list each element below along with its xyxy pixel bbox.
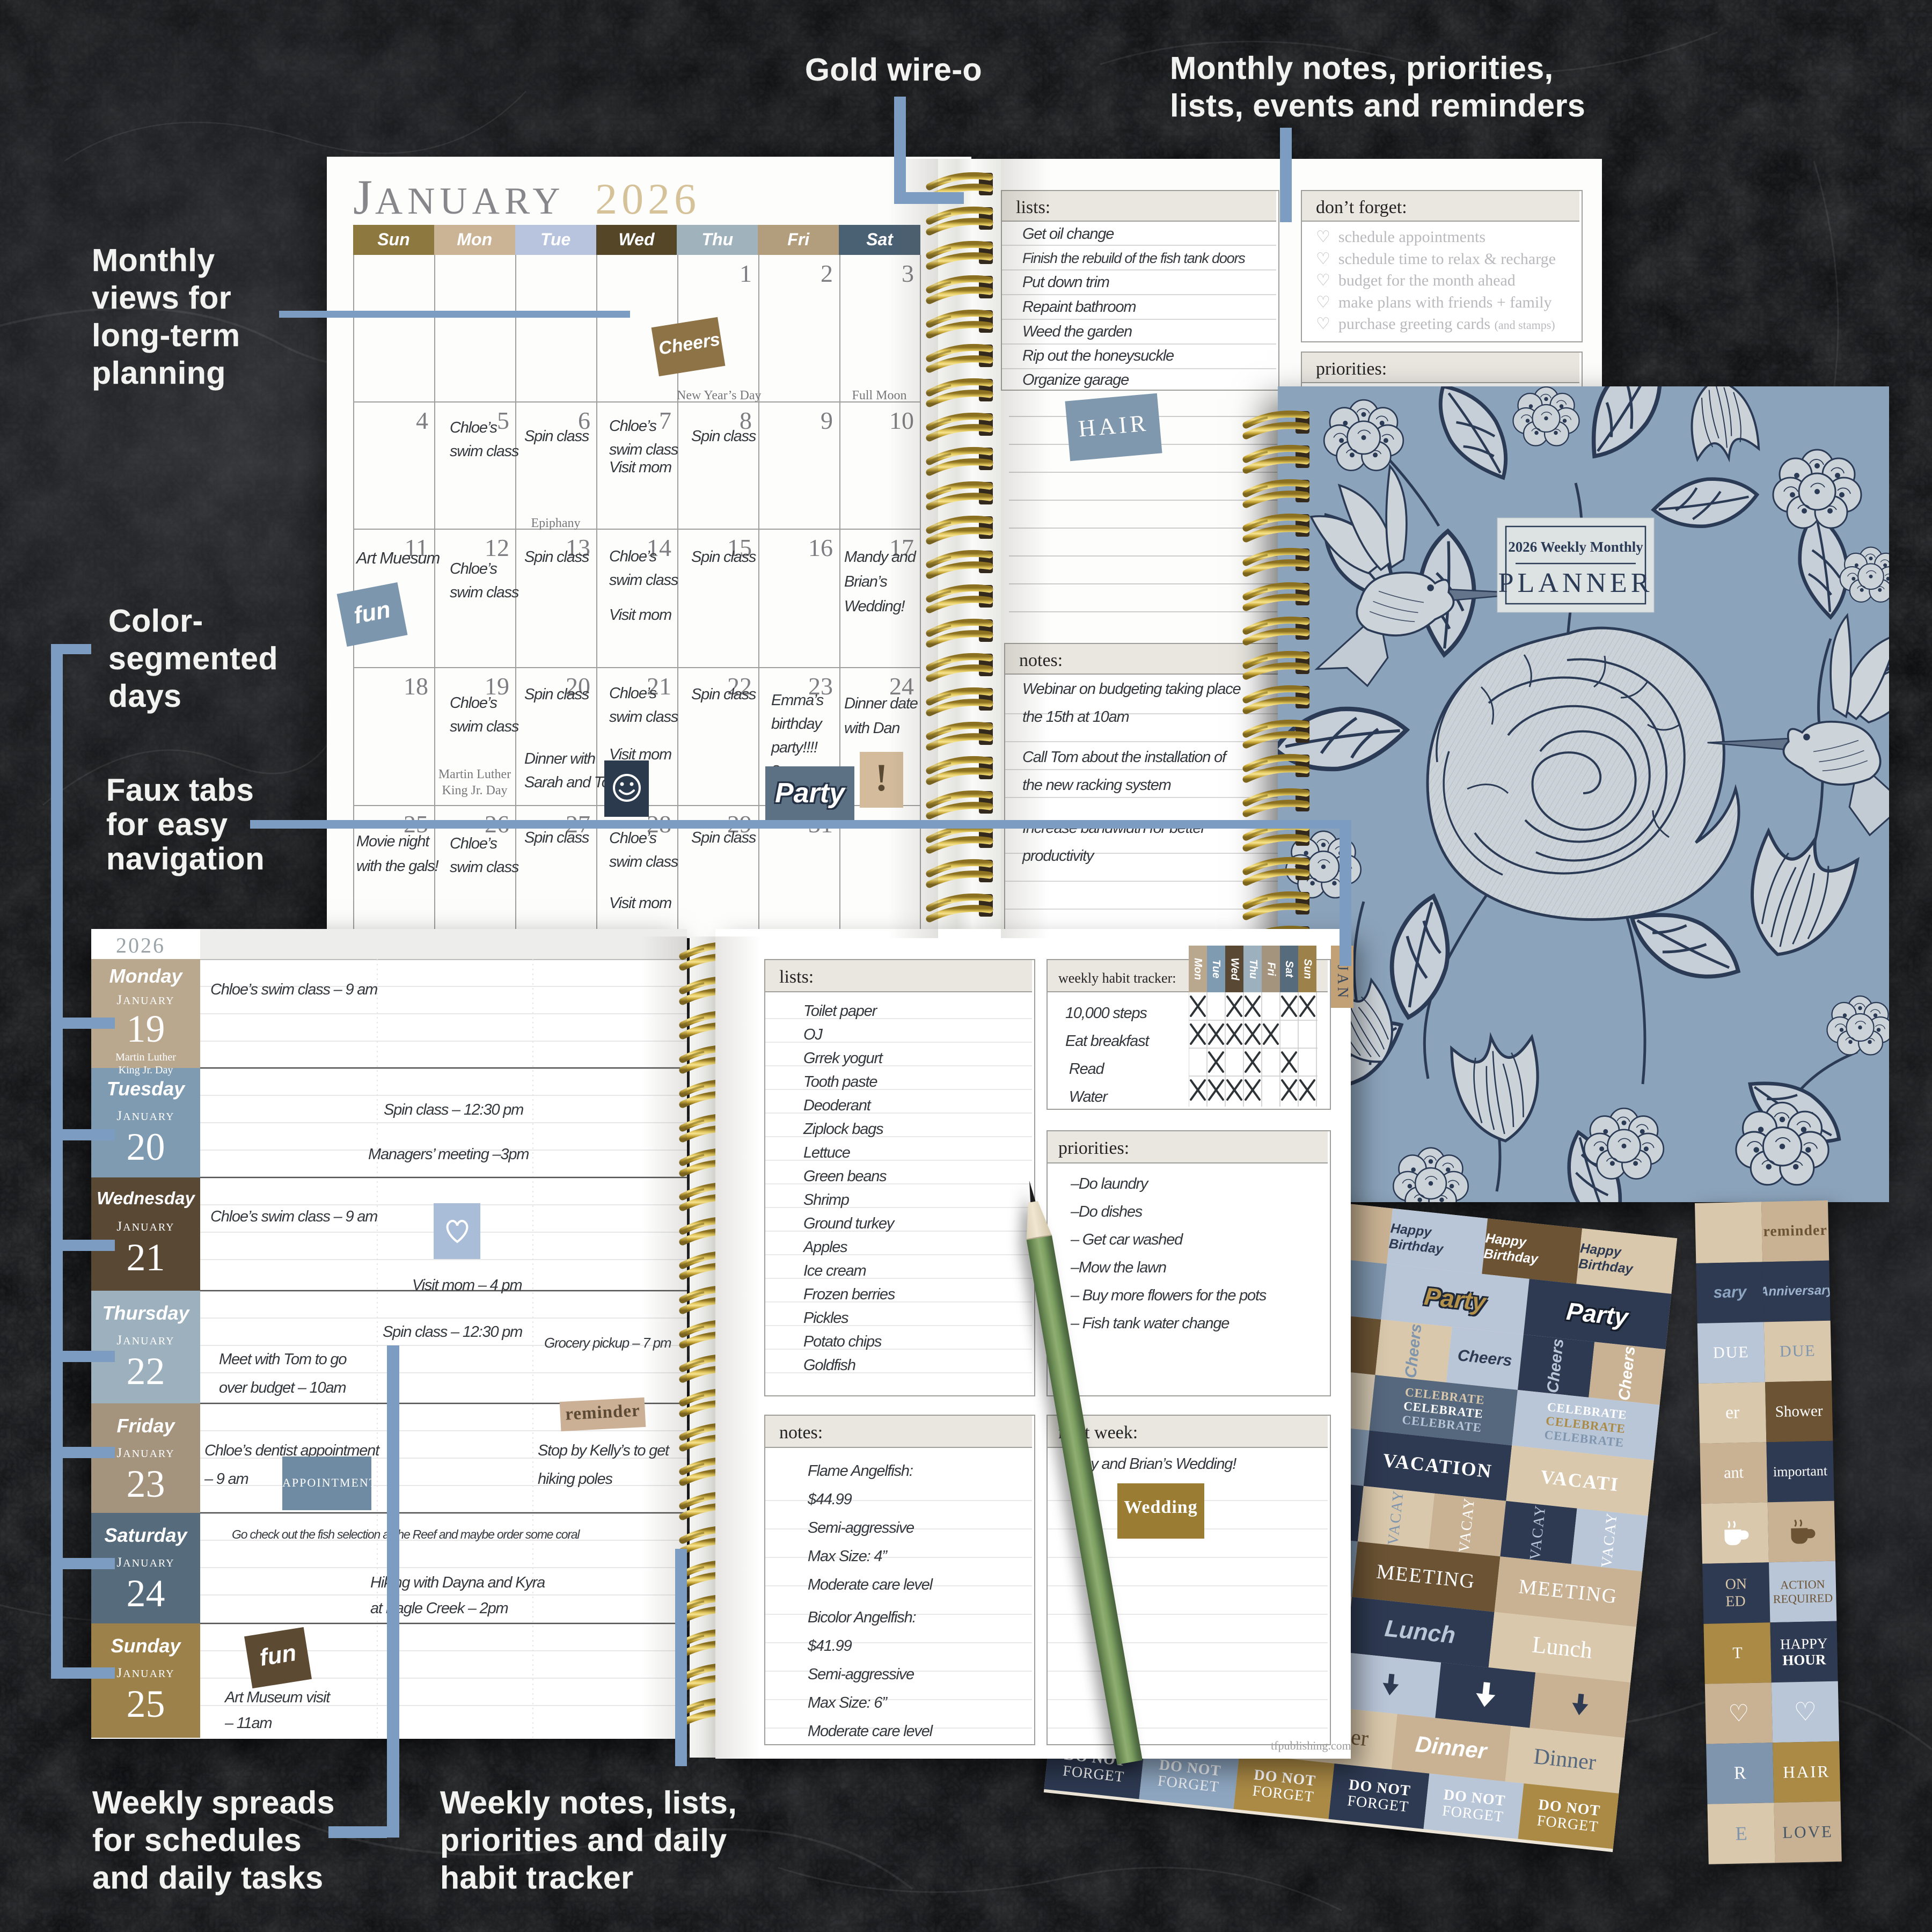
- svg-text:PLANNER: PLANNER: [1498, 568, 1653, 598]
- svg-text:2026 Weekly Monthly: 2026 Weekly Monthly: [1508, 539, 1643, 555]
